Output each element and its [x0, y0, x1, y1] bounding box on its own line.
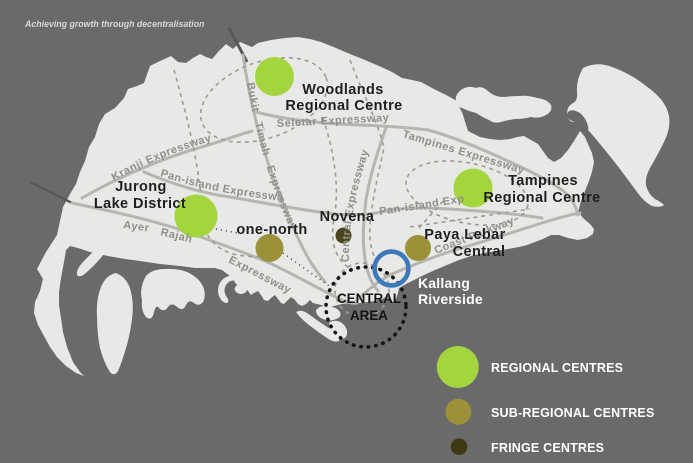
svg-text:Jurong: Jurong: [115, 179, 167, 195]
svg-text:Riverside: Riverside: [418, 291, 483, 307]
svg-text:Achieving growth through decen: Achieving growth through decentralisatio…: [24, 19, 204, 29]
svg-text:Regional Centre: Regional Centre: [483, 190, 600, 206]
svg-text:Lake District: Lake District: [94, 196, 186, 212]
svg-text:Paya Lebar: Paya Lebar: [424, 227, 505, 243]
svg-text:Novena: Novena: [320, 209, 375, 225]
svg-text:REGIONAL CENTRES: REGIONAL CENTRES: [491, 361, 623, 375]
svg-text:FRINGE CENTRES: FRINGE CENTRES: [491, 441, 604, 455]
svg-text:Kallang: Kallang: [418, 275, 470, 291]
svg-text:AREA: AREA: [350, 308, 388, 323]
svg-text:CENTRAL: CENTRAL: [337, 291, 401, 306]
svg-text:Regional Centre: Regional Centre: [285, 98, 402, 114]
svg-text:Central: Central: [453, 244, 506, 260]
svg-text:one-north: one-north: [236, 222, 307, 238]
svg-text:SUB-REGIONAL CENTRES: SUB-REGIONAL CENTRES: [491, 406, 655, 420]
svg-text:Tampines: Tampines: [508, 173, 578, 189]
svg-text:Woodlands: Woodlands: [302, 82, 383, 98]
